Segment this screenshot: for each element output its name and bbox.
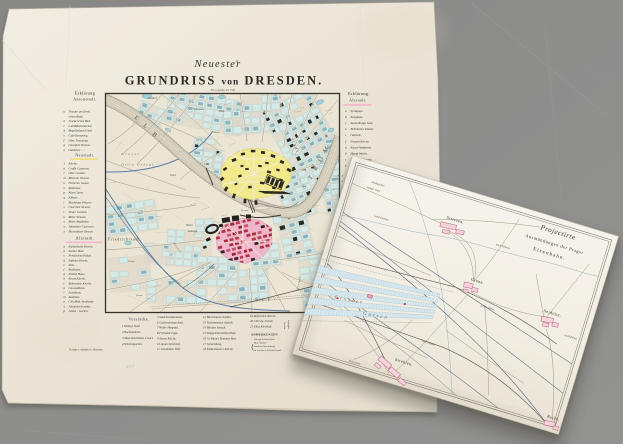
svg-text:Haupt Wache.: Haupt Wache. [350,151,369,155]
svg-text:Ritter Strasse.: Ritter Strasse. [68,215,87,219]
svg-text:4 Winterquartier.: 4 Winterquartier. [122,342,143,346]
svg-text:Zeissgl.Schloß-Werk.: Zeissgl.Schloß-Werk. [254,338,275,341]
svg-text:In wochen u.Schluß Grund.: In wochen u.Schluß Grund. [253,349,282,352]
svg-text:Synagoge.: Synagoge. [351,109,364,113]
svg-text:Justus - Garten.: Justus - Garten. [69,309,89,313]
svg-text:Kunst-Akademie.: Kunst-Akademie. [350,145,372,149]
svg-text:Begräbnispl.d.Anst: Begräbnispl.d.Anst [69,129,93,133]
svg-text:Gewandhaus.: Gewandhaus. [69,286,86,290]
svg-text:11 Josephinen Stift.: 11 Josephinen Stift. [157,347,181,351]
svg-text:Antons: Antons [212,131,220,134]
svg-text:7 Weber Hospital.: 7 Weber Hospital. [157,326,179,330]
svg-text:9 Annen Kirche.: 9 Annen Kirche. [157,336,177,340]
svg-text:l: l [64,291,65,295]
svg-text:S e e -: S e e - [255,297,277,302]
svg-text:Ostra Gehege.: Ostra Gehege. [121,163,156,167]
svg-text:13 Taubstummen Anstalt.: 13 Taubstummen Anstalt. [203,320,234,324]
svg-text:Vorstädte.: Vorstädte. [128,317,149,322]
svg-text:Brühlscher Palais.: Brühlscher Palais. [351,127,374,131]
svg-text:t: t [64,210,65,214]
svg-text:Landhaus.: Landhaus. [68,291,82,295]
svg-text:Ober Graben.: Ober Graben. [69,171,87,175]
svg-text:Antonstadt.: Antonstadt. [73,98,97,102]
svg-text:Ostra: Ostra [186,223,193,227]
svg-text:Kirche.: Kirche. [68,162,78,166]
svg-text:Scheunen: Scheunen [193,108,204,111]
svg-text:Gardinen . . .: Gardinen . . . [69,148,86,152]
svg-text:14 Blinden Anstalt.: 14 Blinden Anstalt. [203,326,226,330]
svg-text:{: { [251,342,255,351]
svg-text:Casernen Strasse.: Casernen Strasse. [69,205,92,209]
svg-text:Prinzliches Palais.: Prinzliches Palais. [68,254,93,258]
svg-text:ANMERKUNGEN: ANMERKUNGEN [251,333,278,337]
svg-text:Zeughaus.: Zeughaus. [351,115,364,119]
svg-text:Georgine Strasse.: Georgine Strasse. [69,143,91,147]
svg-text:begriffen: begriffen [287,320,290,329]
svg-text:Jakobiner Casernen: Jakobiner Casernen [69,225,94,229]
svg-text:Obst. Kreuzung.: Obst. Kreuzung. [69,138,89,142]
svg-text:6 Gasbereitungs Anst.: 6 Gasbereitungs Anst. [157,320,184,324]
svg-text:Grosse: Grosse [121,152,140,156]
svg-text:3 Mosciusk.Palais u.Gart.: 3 Mosciusk.Palais u.Gart. [122,336,154,340]
svg-text:20 Chirurg. Schule.: 20 Chirurg. Schule. [250,319,274,323]
svg-text:Kreuz Kirche.: Kreuz Kirche. [68,277,86,281]
svg-text:Im Bau: Im Bau [283,321,286,330]
svg-text:i: i [64,281,65,285]
svg-text:Neustadt.: Neustadt. [75,154,94,158]
svg-text:8 Freimaur Loge.: 8 Freimaur Loge. [157,331,178,335]
svg-text:n.d.Möbelsäulchen: n.d.Möbelsäulchen [69,124,93,128]
svg-text:Stadtion Versandung.: Stadtion Versandung. [254,345,276,348]
svg-text:l: l [64,171,65,175]
svg-text:Zucker Hutt.: Zucker Hutt. [69,249,85,253]
svg-text:Blau infolirt.: Blau infolirt. [254,342,267,345]
svg-text:Frauen Kirche.: Frauen Kirche. [350,139,370,143]
svg-text:Terrasse: Terrasse [241,210,248,212]
svg-text:schen Bade.: schen Bade. [69,114,84,118]
svg-text:Blockhaus (Wache: Blockhaus (Wache [69,200,92,204]
svg-text:Rathhaus.: Rathhaus. [68,186,82,190]
svg-text:12 Blochmanns Institut.: 12 Blochmanns Institut. [203,315,232,319]
svg-text:Amthaus.: Amthaus. [68,295,81,299]
svg-text:Ausstellungs Saal.: Ausstellungs Saal. [350,121,374,125]
svg-text:Johannen Institut.: Johannen Institut. [69,304,92,308]
svg-text:Häle.: Häle. [219,110,225,113]
svg-text:5 Stadt Krankenhaus.: 5 Stadt Krankenhaus. [157,315,183,319]
svg-text:16 Gr.Wiener Brunnen Rost.: 16 Gr.Wiener Brunnen Rost. [203,336,237,340]
svg-text:19 Reformirte Kirche.: 19 Reformirte Kirche. [250,314,277,318]
svg-text:Ostra: Ostra [170,174,177,177]
svg-text:Lincke'sches Bad.: Lincke'sches Bad. [68,119,91,123]
svg-text:18 Falkenbaum o.Kirche.: 18 Falkenbaum o.Kirche. [203,347,234,351]
svg-text:15 Doppelcharmillen Platz.: 15 Doppelcharmillen Platz. [203,331,236,335]
svg-text:Neudorf.: Neudorf. [147,97,158,100]
svg-text:Neuer Graben.: Neuer Graben. [68,210,88,214]
svg-text:Altes Gasse.: Altes Gasse. [68,191,85,195]
svg-text:Sophien Kirche.: Sophien Kirche. [69,258,89,262]
svg-text:Chir.Med. Academie: Chir.Med. Academie [69,300,95,304]
svg-text:1 Königl. Stall.: 1 Königl. Stall. [122,324,140,328]
svg-text:Katholische Kirche.: Katholische Kirche. [68,245,94,249]
svg-text:Gallerie.: Gallerie. [351,133,362,137]
svg-text:Friedrichstadt.: Friedrichstadt. [108,237,142,242]
svg-text:Verlag v. Adolph in Dresden.: Verlag v. Adolph in Dresden. [69,348,104,352]
svg-text:Klöster . .: Klöster . . [68,195,81,199]
svg-text:Altstadt.: Altstadt. [349,99,367,103]
svg-text:Gehege: Gehege [188,229,198,233]
svg-text:17 Gickelsberg.: 17 Gickelsberg. [203,342,222,346]
svg-text:Polizei Haus.: Polizei Haus. [68,272,86,276]
svg-text:Altstadt.: Altstadt. [76,236,95,241]
svg-text:21 Elias Kirchhof.: 21 Elias Kirchhof. [250,324,272,328]
svg-text:Theater am fürstl.: Theater am fürstl. [69,110,91,114]
svg-text:2 Buchstallerei.: 2 Buchstallerei. [122,330,141,334]
svg-text:Große Casernen.: Große Casernen. [69,166,90,170]
svg-text:Plesenthaer Strasse: Plesenthaer Strasse [68,229,94,233]
svg-text:Erklärung.: Erklärung. [348,91,370,96]
svg-text:Erklärung: Erklärung [75,91,96,96]
svg-text:Ein u. geodn. Sct. Fuß.: Ein u. geodn. Sct. Fuß. [210,89,236,92]
svg-text:Reformirte Kirche.: Reformirte Kirche. [68,281,92,285]
svg-text:10 Annen Kirchhof.: 10 Annen Kirchhof. [157,342,181,346]
svg-text:Rathhaus.: Rathhaus. [68,268,82,272]
svg-text:Post . .: Post . . [68,263,78,267]
svg-text:ι: ι [345,157,346,161]
svg-text:Ritterstr. Strasse.: Ritterstr. Strasse. [68,176,90,180]
svg-text:Café Kreuzweg.: Café Kreuzweg. [69,134,89,138]
svg-text:Plauen: Plauen [135,294,144,297]
svg-text:Fletscher Gasse.: Fletscher Gasse. [68,181,90,185]
svg-text:Ritter Akademie.: Ritter Akademie. [68,220,90,224]
svg-text:Löbtau: Löbtau [127,260,136,263]
svg-text:Neuester: Neuester [194,59,242,70]
